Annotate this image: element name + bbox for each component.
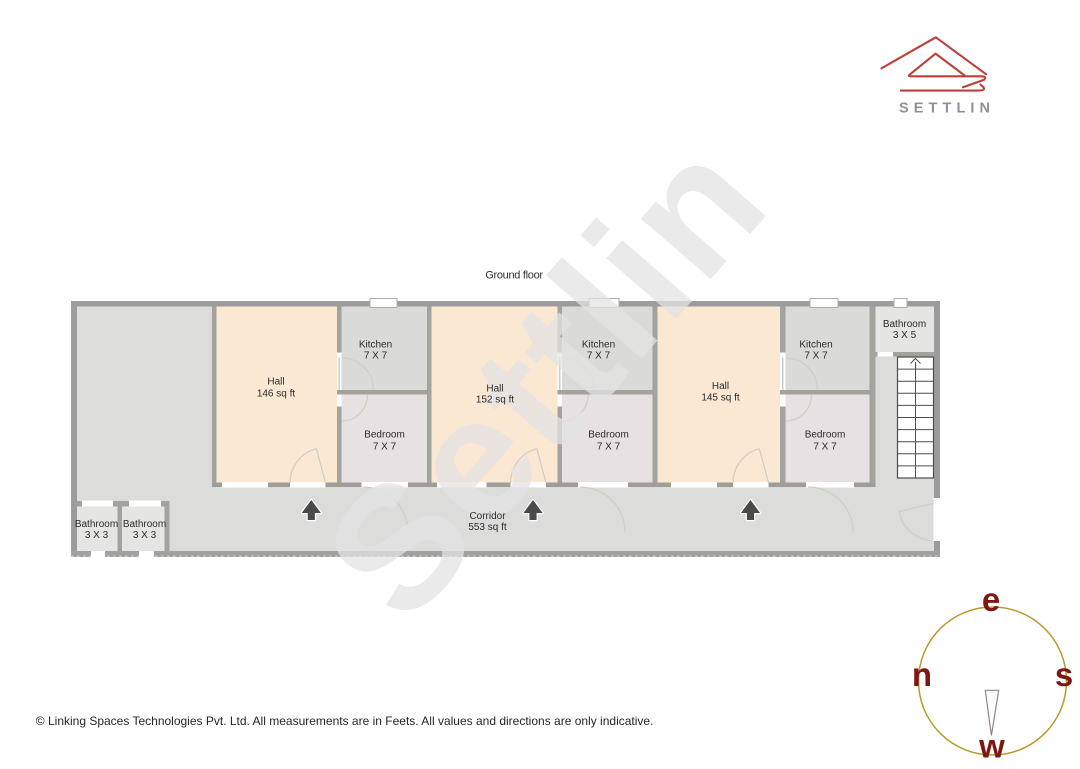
svg-text:n: n [912, 656, 932, 693]
svg-text:Bathroom: Bathroom [883, 319, 926, 330]
svg-text:Kitchen: Kitchen [359, 340, 392, 351]
svg-text:146 sq ft: 146 sq ft [257, 389, 296, 400]
svg-text:s: s [1055, 656, 1073, 693]
svg-text:145 sq ft: 145 sq ft [701, 393, 740, 404]
svg-text:SETTLIN: SETTLIN [899, 100, 995, 116]
svg-text:3 X 5: 3 X 5 [893, 330, 917, 341]
svg-text:7 X 7: 7 X 7 [813, 442, 837, 453]
svg-text:Bedroom: Bedroom [805, 430, 846, 441]
svg-text:3 X 3: 3 X 3 [85, 530, 109, 541]
svg-text:w: w [978, 728, 1005, 765]
svg-text:Bathroom: Bathroom [123, 519, 166, 530]
svg-text:7 X 7: 7 X 7 [587, 351, 611, 362]
svg-text:7 X 7: 7 X 7 [804, 351, 828, 362]
svg-text:Kitchen: Kitchen [582, 340, 615, 351]
svg-text:Bedroom: Bedroom [588, 430, 629, 441]
svg-text:Bedroom: Bedroom [364, 430, 405, 441]
svg-text:e: e [982, 581, 1000, 618]
svg-text:Hall: Hall [712, 381, 729, 392]
svg-text:Hall: Hall [267, 377, 284, 388]
svg-text:7 X 7: 7 X 7 [364, 351, 388, 362]
svg-text:152 sq ft: 152 sq ft [476, 395, 515, 406]
svg-text:3 X 3: 3 X 3 [133, 530, 157, 541]
svg-text:Bathroom: Bathroom [75, 519, 118, 530]
svg-text:7 X 7: 7 X 7 [373, 442, 397, 453]
svg-text:© Linking Spaces Technologies: © Linking Spaces Technologies Pvt. Ltd. … [36, 714, 654, 728]
svg-text:Corridor: Corridor [469, 511, 506, 522]
svg-text:Hall: Hall [486, 384, 503, 395]
svg-text:Ground floor: Ground floor [485, 270, 543, 282]
svg-text:7 X 7: 7 X 7 [597, 442, 621, 453]
svg-text:553 sq ft: 553 sq ft [468, 522, 507, 533]
svg-text:Kitchen: Kitchen [799, 340, 832, 351]
